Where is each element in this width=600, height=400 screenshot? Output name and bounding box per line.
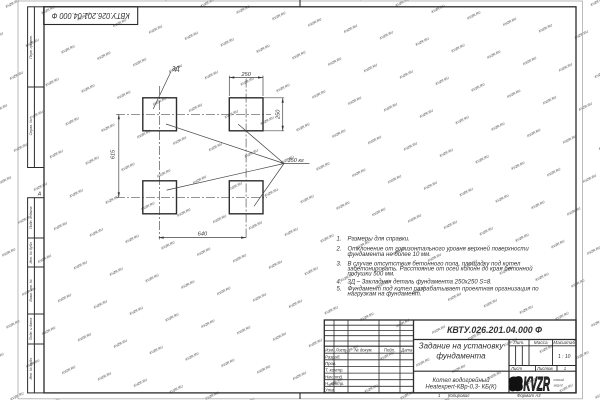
svg-text:640: 640 xyxy=(198,232,208,238)
svg-text:Н. контр.: Н. контр. xyxy=(325,381,344,386)
svg-text:Инв. № подл.: Инв. № подл. xyxy=(29,357,33,379)
svg-text:Копировал: Копировал xyxy=(448,393,470,398)
svg-text:Лит.: Лит. xyxy=(513,340,525,345)
svg-text:Задание на установку: Задание на установку xyxy=(419,342,505,351)
svg-text:3Д – Закладная деталь фундамен: 3Д – Закладная деталь фундамента 250x250… xyxy=(348,280,492,286)
svg-text:350 кг: 350 кг xyxy=(288,158,305,164)
svg-text:Изм: Изм xyxy=(325,347,333,352)
svg-text:Подп.: Подп. xyxy=(384,347,395,352)
svg-text:нагрузкам на фундамент.: нагрузкам на фундамент. xyxy=(348,292,422,298)
svg-text:А: А xyxy=(37,192,42,198)
svg-text:3.: 3. xyxy=(336,262,341,268)
svg-text:Лист: Лист xyxy=(510,366,522,371)
svg-text:250: 250 xyxy=(241,72,252,78)
svg-text:4.: 4. xyxy=(336,280,341,286)
svg-text:Котел водогрейный: Котел водогрейный xyxy=(432,377,490,384)
svg-text:Подп. и дата: Подп. и дата xyxy=(29,207,33,230)
svg-text:КВТУ.026.201.04.000 Ф: КВТУ.026.201.04.000 Ф xyxy=(52,11,130,20)
svg-text:КВТУ.026.201.04.000 Ф: КВТУ.026.201.04.000 Ф xyxy=(447,325,543,335)
svg-text:615: 615 xyxy=(111,149,117,159)
svg-text:Масса: Масса xyxy=(534,340,548,345)
svg-text:Лист: Лист xyxy=(335,347,347,352)
svg-text:1.: 1. xyxy=(336,237,341,243)
svg-text:Размеры для справки.: Размеры для справки. xyxy=(348,237,410,243)
svg-text:Т. контр.: Т. контр. xyxy=(325,368,344,373)
svg-text:Взам. инв. №: Взам. инв. № xyxy=(29,279,33,301)
svg-text:Перв. примен.: Перв. примен. xyxy=(29,35,33,59)
svg-text:3Д: 3Д xyxy=(172,67,180,73)
svg-text:Утв.: Утв. xyxy=(325,388,335,393)
svg-text:Пров.: Пров. xyxy=(325,361,336,366)
svg-text:Формат А3: Формат А3 xyxy=(517,393,541,398)
svg-text:Нач.отд.: Нач.отд. xyxy=(325,374,343,379)
svg-text:Масштаб: Масштаб xyxy=(553,340,575,345)
svg-text:Heatexpert-КВр-0,3- КБ(К): Heatexpert-КВр-0,3- КБ(К) xyxy=(425,384,496,390)
svg-text:250: 250 xyxy=(276,109,282,120)
svg-text:Справ. №: Справ. № xyxy=(29,119,33,135)
svg-text:фундамента: фундамента xyxy=(436,352,486,361)
svg-text:№ докум.: № докум. xyxy=(354,347,372,352)
svg-text:Дата: Дата xyxy=(400,347,413,352)
svg-text:КОТЕЛЬНЫЙ: КОТЕЛЬНЫЙ xyxy=(554,378,565,382)
svg-text:фундамента не более 10 мм.: фундамента не более 10 мм. xyxy=(348,252,431,258)
svg-text:Разраб.: Разраб. xyxy=(325,355,341,360)
svg-text:подушки 500 мм.: подушки 500 мм. xyxy=(348,272,395,278)
svg-text:Инв. № дубл.: Инв. № дубл. xyxy=(29,241,33,263)
svg-text:1 : 10: 1 : 10 xyxy=(558,354,571,360)
svg-text:Листов: Листов xyxy=(536,366,553,371)
svg-text:Подп. и дата: Подп. и дата xyxy=(29,318,33,341)
svg-text:ЗАВОД РЭП: ЗАВОД РЭП xyxy=(554,384,564,388)
svg-text:5.: 5. xyxy=(336,287,341,293)
svg-text:2.: 2. xyxy=(335,247,341,253)
